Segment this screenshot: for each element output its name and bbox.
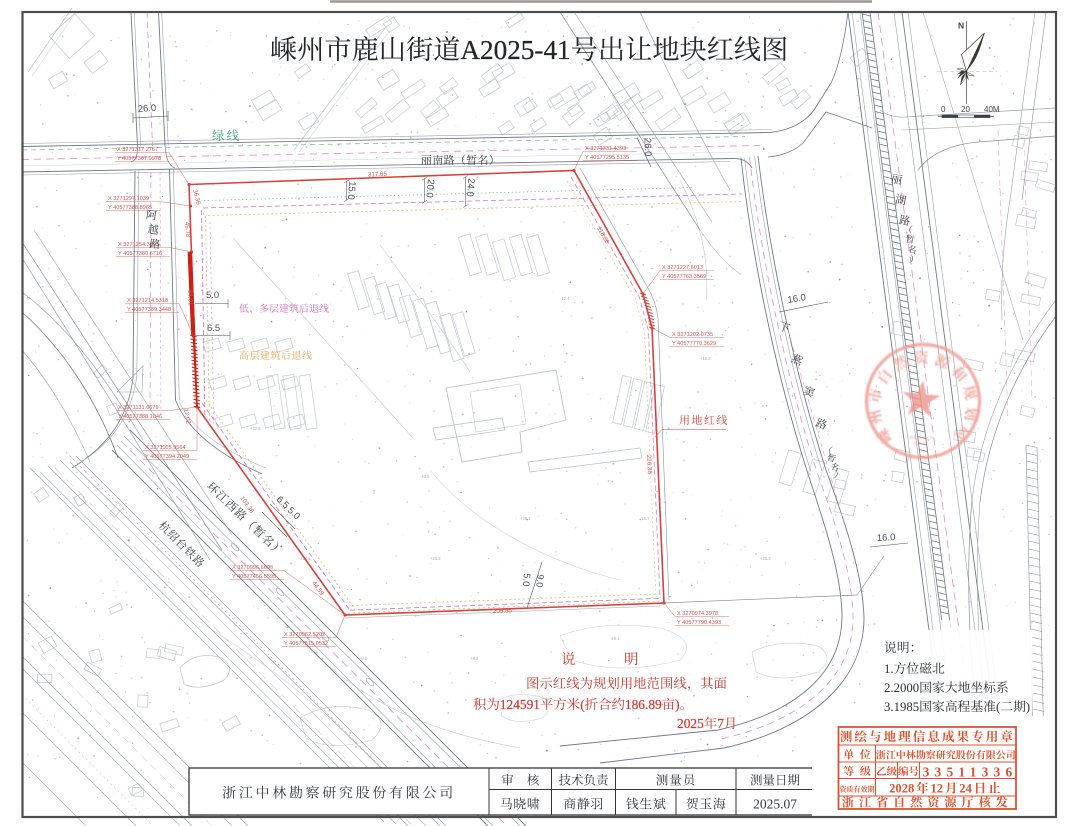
svg-text:26.0: 26.0 [642,138,654,157]
svg-text:Y 40577456.5595: Y 40577456.5595 [232,574,276,580]
svg-text:33511336: 33511336 [923,765,1018,780]
svg-text:Y 40577388.1046: Y 40577388.1046 [118,414,162,420]
svg-text:Y 40577790.4393: Y 40577790.4393 [677,620,721,626]
svg-text:20: 20 [961,105,970,114]
svg-text:12: 12 [931,782,944,796]
svg-text:X 3271105.9564: X 3271105.9564 [145,445,186,451]
svg-text:84.01: 84.01 [186,290,194,306]
svg-text:033115: 033115 [913,441,928,446]
svg-text:6.5: 6.5 [207,323,220,334]
svg-text:+18.2: +18.2 [700,356,711,361]
svg-text:Y 40577389.3448: Y 40577389.3448 [127,307,171,313]
svg-text:-15.7: -15.7 [640,516,650,521]
svg-text:Y 40577770.3629: Y 40577770.3629 [672,341,716,347]
svg-text:Y 40577380.6716: Y 40577380.6716 [118,251,162,257]
svg-text:-43.5: -43.5 [420,474,430,479]
svg-text:Y 40577394.2049: Y 40577394.2049 [145,454,189,460]
svg-text:X 3271227.6013: X 3271227.6013 [662,265,703,271]
svg-text:+22.8: +22.8 [250,426,261,431]
svg-text:+24.2: +24.2 [430,556,441,561]
svg-text:X 3271214.5318: X 3271214.5318 [127,298,168,304]
svg-text:Y 40577388.8965: Y 40577388.8965 [108,205,152,211]
svg-text:(: ( [996,700,1000,714]
svg-text:Y 40577295.5135: Y 40577295.5135 [585,155,629,161]
svg-text:2025.07: 2025.07 [753,797,797,812]
svg-text:(: ( [580,697,585,712]
svg-text:3.1985: 3.1985 [884,700,919,714]
svg-text:24: 24 [959,782,972,796]
svg-text:2028: 2028 [889,782,914,796]
svg-text:X 3270974.3978: X 3270974.3978 [677,611,718,617]
svg-text:X 3271254.3693: X 3271254.3693 [118,242,159,248]
svg-text:+9.3: +9.3 [470,656,479,661]
svg-text:+25.3: +25.3 [760,556,771,561]
svg-text:1.: 1. [884,662,894,676]
svg-text:-12.4: -12.4 [560,296,570,301]
svg-text:X 3270996.6606: X 3270996.6606 [232,565,273,571]
svg-text:3306000215: 3306000215 [908,435,934,440]
svg-text:Y 40577763.3569: Y 40577763.3569 [662,274,706,280]
svg-text:15.0: 15.0 [345,181,358,200]
svg-text:124591: 124591 [500,697,540,712]
svg-text:A2025-41: A2025-41 [460,35,570,65]
svg-text:-26.1: -26.1 [610,636,620,641]
svg-text:+25.1: +25.1 [520,516,531,521]
svg-text:0: 0 [941,105,946,114]
svg-text:X 3271331.4393: X 3271331.4393 [585,146,626,152]
svg-text:Y 40577367.9978: Y 40577367.9978 [117,156,161,162]
svg-text:X 3271317.2767: X 3271317.2767 [117,147,158,153]
svg-text:40M: 40M [984,105,1000,114]
svg-text:186.89: 186.89 [625,697,662,712]
svg-text:205.85: 205.85 [493,607,513,615]
svg-text:45.78: 45.78 [183,222,191,239]
svg-text:20.0: 20.0 [423,179,436,198]
svg-text:5.0: 5.0 [520,573,532,587]
svg-text:7: 7 [717,716,724,731]
svg-text:Y 40577515.0532: Y 40577515.0532 [284,641,328,647]
svg-text:): ) [675,697,679,712]
svg-text:X 3271297.1039: X 3271297.1039 [108,196,149,202]
svg-text:X 3270962.5202: X 3270962.5202 [284,632,325,638]
svg-text:2.2000: 2.2000 [884,681,919,695]
svg-text:X 3271202.0735: X 3271202.0735 [672,332,713,338]
svg-text:N: N [958,21,964,31]
svg-text:5.0: 5.0 [206,290,219,301]
svg-text:-8.6: -8.6 [360,656,368,661]
svg-text:9.0: 9.0 [533,574,545,588]
svg-text:16.0: 16.0 [877,532,896,544]
svg-text:317.65: 317.65 [368,171,388,179]
svg-text:2025: 2025 [677,716,704,731]
svg-text:26.0: 26.0 [137,103,156,115]
svg-text:226.38: 226.38 [645,455,653,475]
svg-text:): ) [1026,700,1030,714]
svg-text:X 3271131.6679: X 3271131.6679 [118,405,159,411]
